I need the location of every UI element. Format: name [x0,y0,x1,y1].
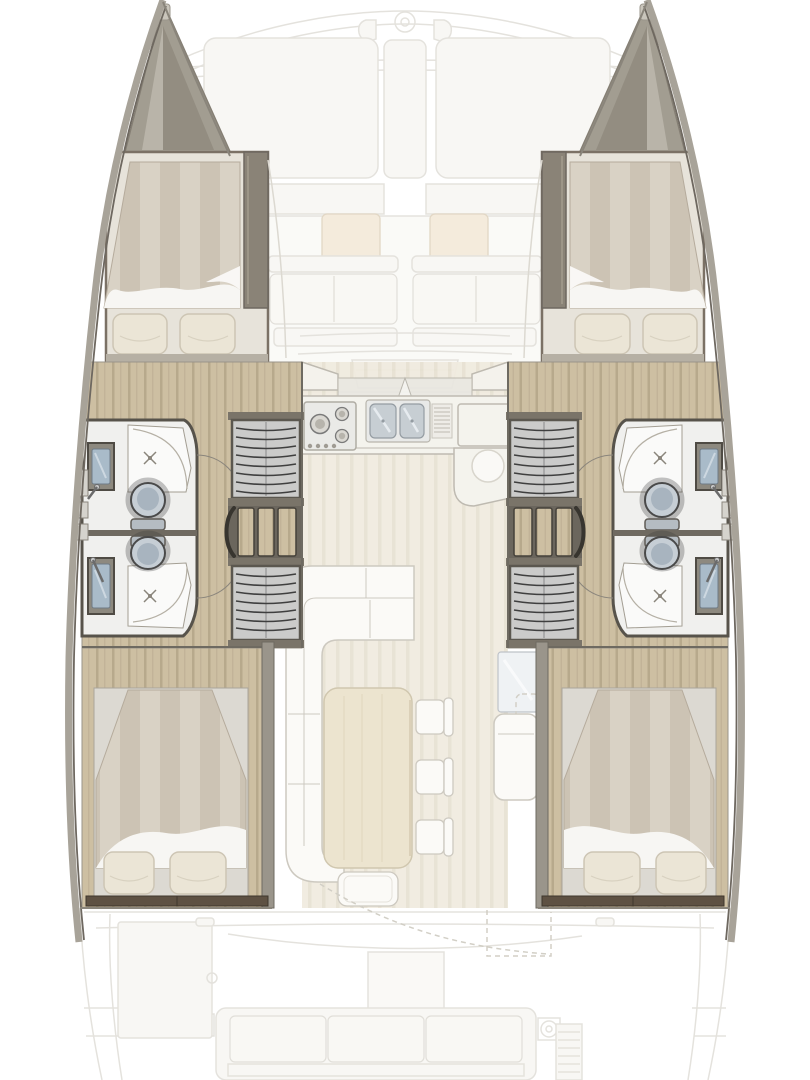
fwd-shower-drain-dot [148,456,152,460]
aft-shower-drain-dot [148,594,152,598]
chair-2 [416,758,453,796]
aft-shower [128,563,191,628]
floorplan-canvas [0,0,810,1080]
burner-small-1-center [339,411,345,417]
dining-table [324,688,412,868]
fwd-bench-stbd-back [412,256,542,272]
fwd-toilet-inner [137,488,159,511]
center-hatch-strip [384,40,426,178]
cockpit-seat-front [228,1064,524,1076]
fwd-pillow-2 [180,314,235,354]
fwd-pillow-1 [113,314,167,354]
burner-small-2-center [339,433,345,439]
aft-cabin-inboard-wall [262,642,274,908]
forestay-ring-inner [401,18,409,26]
chair-1 [416,698,453,736]
forward-table-starboard [430,214,488,262]
aft-pillow-2 [170,852,226,894]
stbd-stern-inner [688,914,700,1080]
aft-pillow-1 [104,852,154,894]
catamaran-floorplan [0,0,810,1080]
salon-aft-wall-arc [228,934,582,949]
forward-table-port [322,214,380,262]
fwd-toilet-tank [131,519,165,530]
companionway-steps [238,508,296,556]
fridge-counter [458,404,510,446]
chair-3 [416,818,453,856]
storage-hatch [118,922,212,1038]
stbd-winch-center [546,1026,552,1032]
sink-drain-left [381,419,384,422]
fwd-bench-port-fascia [274,328,397,346]
cockpit-cushion-2 [328,1016,424,1062]
forestay-ring [395,12,415,32]
burner-large-center [315,419,325,429]
fwd-cabin-sill [106,354,268,362]
stbd-aft-cleat [596,918,614,926]
dish-drainer-lines [434,408,450,432]
dish-drainer [432,404,452,438]
sink-drain-right [410,419,413,422]
nav-seat [494,714,538,800]
fwd-bench-stbd-fascia [413,328,536,346]
fwd-bench-port-back [268,256,398,272]
peninsula-round-top [472,450,504,482]
cockpit-cushion-1 [230,1016,326,1062]
stbd-winch [541,1021,557,1037]
wardrobe-fwd-shelf-bottom [228,498,304,506]
aft-toilet-inner [137,543,159,565]
port-aft-cleat [196,918,214,926]
cockpit-cushion-3 [426,1016,522,1062]
cockpit-table [368,952,444,1010]
